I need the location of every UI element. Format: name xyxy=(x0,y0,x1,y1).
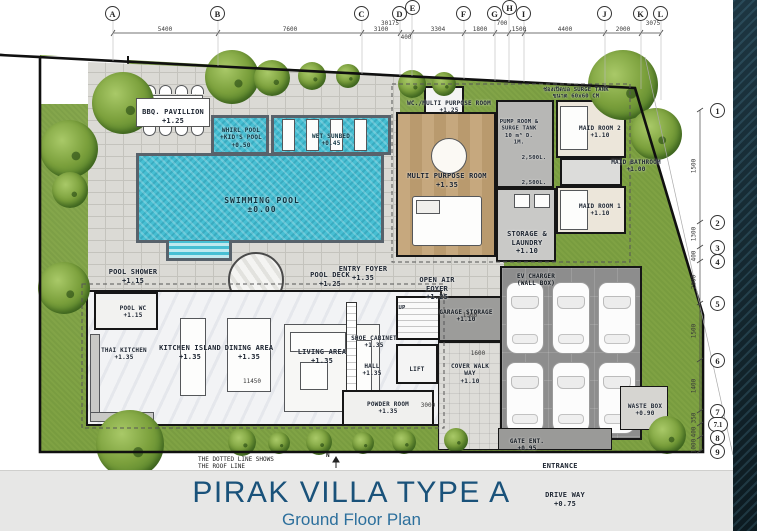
label-kitchen-island: KITCHEN ISLAND+1.35 xyxy=(158,336,222,361)
label-maid-room-1: MAID ROOM 1+1.10 xyxy=(570,196,630,218)
pillow xyxy=(416,200,440,214)
label-wet-sunbed: WET SUNBED+0.45 xyxy=(296,126,366,148)
label-wc-multi-purpose: WC./MULTI PURPOSE ROOM+1.25 xyxy=(394,93,504,115)
sunbed-lounger xyxy=(282,119,295,151)
label-living-area: LIVING AREA+1.35 xyxy=(292,340,352,365)
roof-line-note: THE DOTTED LINE SHOWS THE ROOF LINE xyxy=(198,456,274,470)
label-swimming-pool: SWIMMING POOL±0.00 xyxy=(212,186,312,215)
dim-minor: 11450 xyxy=(243,378,261,385)
label-cover-walkway: COVER WALK WAY+1.10 xyxy=(448,356,492,385)
grid-bubble-K: K xyxy=(633,6,648,21)
label-shoe-cabinet: SHOE CABINET+1.35 xyxy=(348,328,400,350)
label-drive-way: DRIVE WAY+0.75 xyxy=(530,483,600,508)
dim-right: 1300 xyxy=(691,227,698,241)
label-tank-1: 2,500L. xyxy=(517,148,550,161)
grid-bubble-4: 4 xyxy=(710,254,725,269)
label-ev-charger: EV CHARGER(WALL BOX) xyxy=(496,266,576,288)
tree xyxy=(96,410,164,478)
grid-bubble-F: F xyxy=(456,6,471,21)
tree xyxy=(52,172,88,208)
dim-minor: 1500 xyxy=(463,312,477,319)
dim-right: 350 xyxy=(691,413,698,424)
grid-bubble-H: H xyxy=(502,0,517,15)
bush xyxy=(392,430,416,454)
dim-seg: 700 xyxy=(497,20,508,27)
label-maid-room-2: MAID ROOM 2+1.10 xyxy=(570,118,630,140)
bbq-chair xyxy=(159,85,172,94)
grid-bubble-1: 1 xyxy=(710,103,725,118)
dim-right: 1500 xyxy=(691,159,698,173)
dim-right: 400 xyxy=(691,251,698,262)
label-up: UP xyxy=(393,298,411,311)
label-storage-laundry: STORAGE & LAUNDRY+1.10 xyxy=(496,222,558,256)
label-tank-2: 2,500L. xyxy=(517,173,550,186)
dim-minor: 3000 xyxy=(421,402,435,409)
label-lift: LIFT xyxy=(402,359,432,373)
tree xyxy=(254,60,290,96)
label-dining-area: DINING AREA+1.35 xyxy=(224,336,274,361)
floor-plan-sheet: A B C D E F G H I J K L 30175 5400 7600 … xyxy=(0,0,757,531)
label-thai-kitchen: THAI KITCHEN+1.35 xyxy=(96,340,152,362)
tree xyxy=(298,62,326,90)
grid-bubble-6: 6 xyxy=(710,353,725,368)
tree xyxy=(648,416,686,454)
grid-bubble-I: I xyxy=(516,6,531,21)
grid-bubble-3: 3 xyxy=(710,240,725,255)
label-bbq-pavilion: BBQ. PAVILLION+1.25 xyxy=(136,98,210,127)
bbq-chair xyxy=(191,85,204,94)
north-label: N xyxy=(326,452,330,459)
label-waste-box: WASTE BOX+0.90 xyxy=(622,396,668,418)
label-powder-room: POWDER ROOM+1.35 xyxy=(348,394,428,416)
label-pump-room: PUMP ROOM & SURGE TANK10 m³ D. 1M. xyxy=(500,112,539,145)
title-bar: PIRAK VILLA TYPE A Ground Floor Plan xyxy=(0,470,733,531)
dim-seg: 400 xyxy=(401,34,412,41)
grid-bubble-E: E xyxy=(405,0,420,15)
car xyxy=(506,362,544,434)
label-pool-shower: POOL SHOWER+1.15 xyxy=(93,260,173,285)
car xyxy=(552,282,590,354)
grid-bubble-9: 9 xyxy=(710,444,725,459)
label-gate-entrance: GATE ENT.+0.95 xyxy=(500,431,554,453)
grid-bubble-J: J xyxy=(597,6,612,21)
tree xyxy=(38,262,90,314)
dim-seg: 1500 xyxy=(512,26,526,33)
label-multi-purpose-room: MULTI PURPOSE ROOM+1.35 xyxy=(407,164,487,189)
grid-bubble-2: 2 xyxy=(710,215,725,230)
dim-minor: 1600 xyxy=(471,350,485,357)
label-entrance: ENTRANCE xyxy=(525,454,595,471)
label-open-air-foyer: OPEN AIR FOYER+1.25 xyxy=(407,268,467,302)
label-entry-foyer: ENTRY FOYER+1.35 xyxy=(328,257,398,282)
dim-seg: 4400 xyxy=(558,26,572,33)
page-subtitle: Ground Floor Plan xyxy=(0,510,703,530)
grid-bubble-L: L xyxy=(653,6,668,21)
grid-bubble-B: B xyxy=(210,6,225,21)
pool-steps xyxy=(166,241,232,261)
slide-background-band xyxy=(733,0,757,531)
grid-bubble-G: G xyxy=(487,6,502,21)
dim-seg: 3100 xyxy=(374,26,388,33)
dim-seg: 3075 xyxy=(646,20,660,27)
washer xyxy=(534,194,550,208)
grid-bubble-A: A xyxy=(105,6,120,21)
bush xyxy=(268,432,290,454)
bush xyxy=(352,432,374,454)
label-whirl-pool: WHIRL POOL +KID'S POOL+0.50 xyxy=(209,120,273,149)
grid-bubble-5: 5 xyxy=(710,296,725,311)
tree xyxy=(205,50,259,104)
dim-seg: 1800 xyxy=(473,26,487,33)
tree xyxy=(336,64,360,88)
dim-right: 400 xyxy=(691,427,698,438)
car xyxy=(506,282,544,354)
dim-right: 1500 xyxy=(691,324,698,338)
washer xyxy=(514,194,530,208)
label-pool-wc: POOL WC+1.15 xyxy=(103,298,163,320)
dim-seg: 3304 xyxy=(431,26,445,33)
bush xyxy=(228,428,256,456)
dim-seg: 7600 xyxy=(283,26,297,33)
dim-right: 1400 xyxy=(691,379,698,393)
dim-seg: 2000 xyxy=(616,26,630,33)
label-hall: HALL+1.35 xyxy=(352,356,392,378)
car xyxy=(598,282,636,354)
dim-seg: 5400 xyxy=(158,26,172,33)
bush xyxy=(444,428,468,452)
coffee-table xyxy=(300,362,328,390)
car xyxy=(552,362,590,434)
tree xyxy=(40,120,98,178)
grid-bubble-8: 8 xyxy=(710,430,725,445)
label-maid-bathroom: MAID BATHROOM+1.00 xyxy=(609,152,663,174)
bbq-chair xyxy=(175,85,188,94)
grid-bubble-C: C xyxy=(354,6,369,21)
label-surge-tank-note: ช่องเปิดบ่อ SURGE TANK ขนาด 60x60 CM xyxy=(524,80,627,100)
dim-right: 1000 xyxy=(691,439,698,453)
dim-right: 2000 xyxy=(691,275,698,289)
